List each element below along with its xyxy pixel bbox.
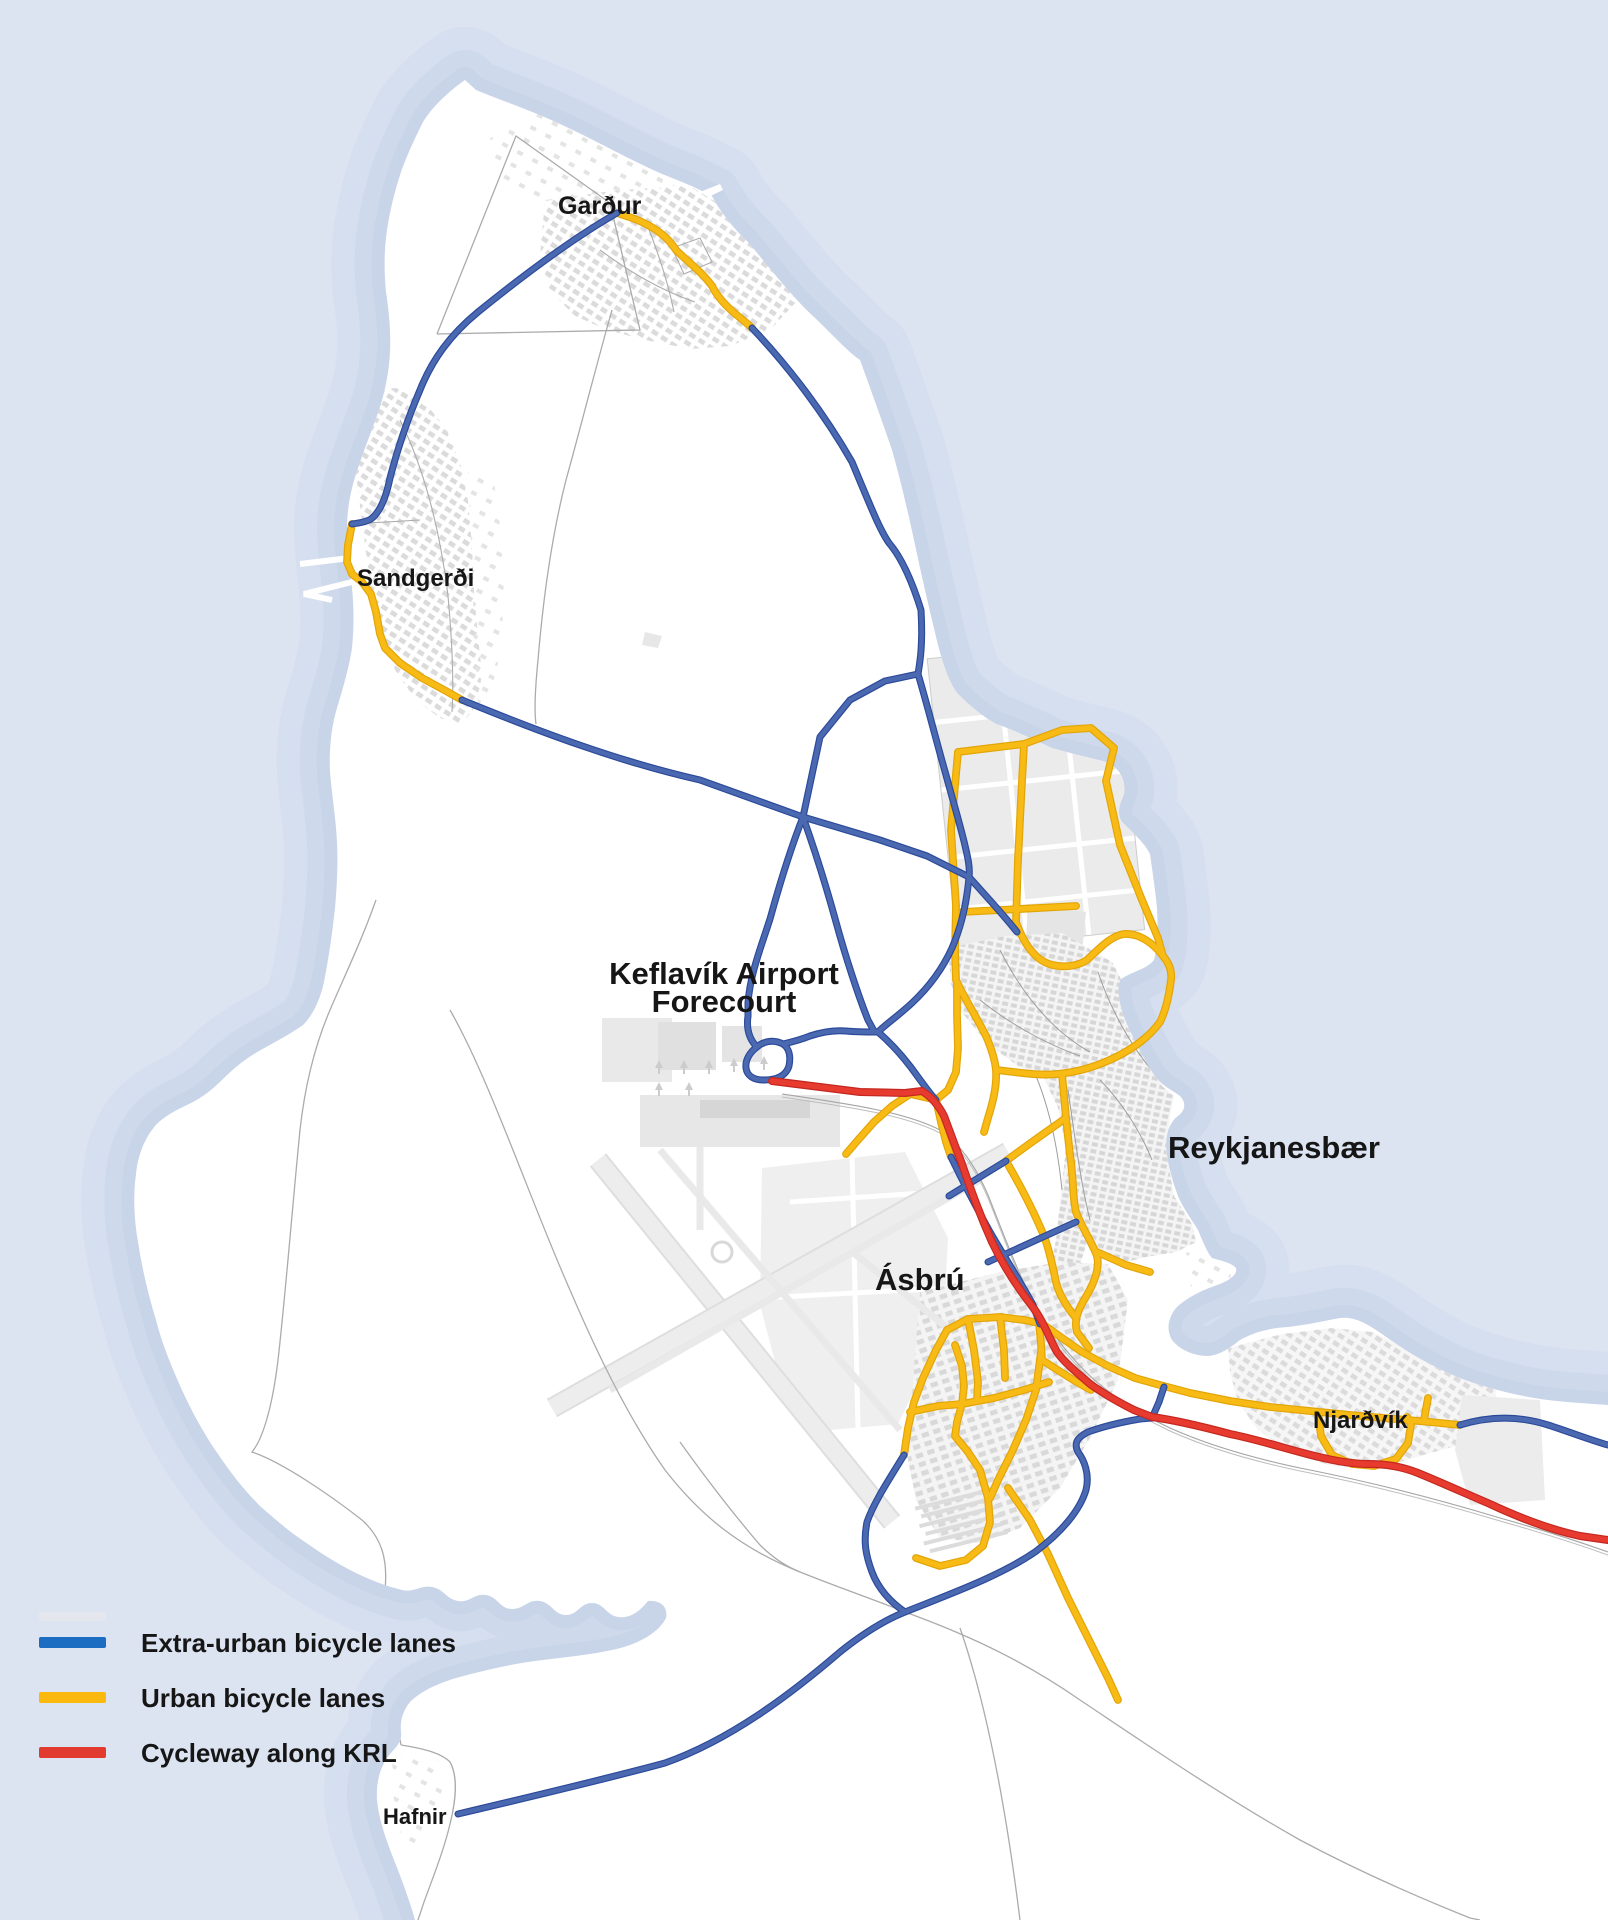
svg-text:Urban bicycle lanes: Urban bicycle lanes xyxy=(141,1683,385,1713)
svg-text:Ásbrú: Ásbrú xyxy=(875,1262,965,1297)
svg-text:Njarðvík: Njarðvík xyxy=(1313,1407,1408,1434)
svg-text:Garður: Garður xyxy=(558,192,642,220)
svg-text:Hafnir: Hafnir xyxy=(383,1804,447,1829)
svg-text:Forecourt: Forecourt xyxy=(652,984,797,1019)
svg-text:Sandgerði: Sandgerði xyxy=(357,565,474,592)
svg-text:Extra-urban bicycle lanes: Extra-urban bicycle lanes xyxy=(141,1628,456,1658)
svg-text:Reykjanesbær: Reykjanesbær xyxy=(1168,1130,1380,1165)
svg-text:Cycleway along KRL: Cycleway along KRL xyxy=(141,1738,397,1768)
